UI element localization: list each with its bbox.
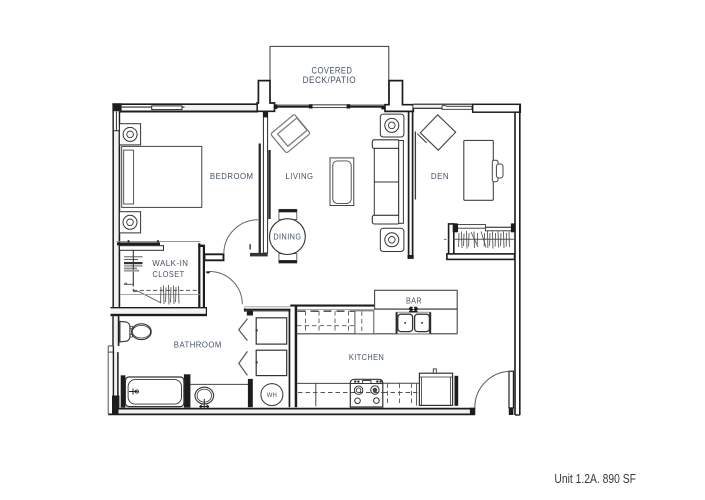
svg-text:BATHROOM: BATHROOM	[174, 340, 222, 349]
svg-text:BAR: BAR	[406, 296, 422, 305]
svg-text:DINING: DINING	[273, 232, 301, 241]
svg-text:BEDROOM: BEDROOM	[210, 172, 254, 181]
svg-text:COVERED: COVERED	[312, 66, 353, 76]
svg-text:DEN: DEN	[431, 172, 449, 181]
svg-text:WH: WH	[267, 393, 277, 399]
svg-text:LIVING: LIVING	[286, 172, 314, 181]
svg-text:Unit 1.2A. 890 SF: Unit 1.2A. 890 SF	[554, 471, 636, 486]
svg-text:KITCHEN: KITCHEN	[349, 353, 384, 362]
svg-text:CLOSET: CLOSET	[153, 270, 185, 279]
svg-text:WALK-IN: WALK-IN	[152, 259, 188, 268]
svg-text:DECK/PATIO: DECK/PATIO	[303, 75, 357, 85]
